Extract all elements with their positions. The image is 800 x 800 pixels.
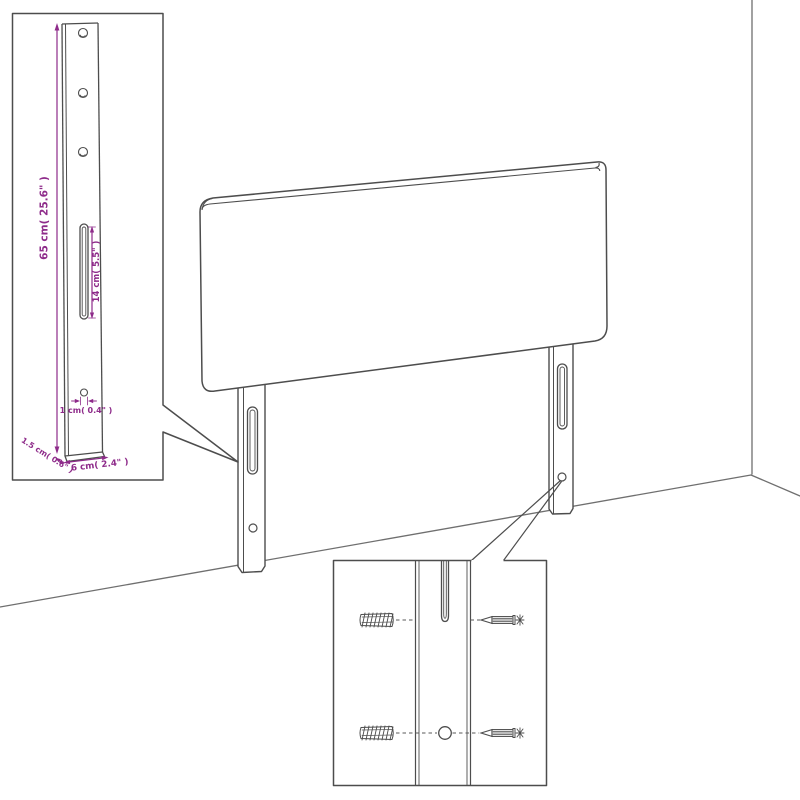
headboard-leg-left xyxy=(238,383,265,573)
detail-inset-wall-mounting xyxy=(333,481,562,787)
callout-line-right xyxy=(504,482,562,561)
panel-outline xyxy=(200,162,607,391)
detail-box-fill xyxy=(333,560,547,786)
headboard-panel xyxy=(200,162,607,391)
floor-line-right xyxy=(751,475,800,496)
dim-leg-height-label: 65 cm( 25.6" ) xyxy=(39,176,51,260)
screw-head-scribble xyxy=(516,728,524,738)
leg-body xyxy=(238,383,265,573)
screw-collar xyxy=(513,616,515,625)
dim-hole-diameter-label: 1 cm( 0.4" ) xyxy=(60,406,113,415)
screw-head-scribble xyxy=(516,615,524,625)
diagram-svg: 65 cm( 25.6" ) 14 cm( 5.5" ) 1 cm( 0.4" … xyxy=(0,0,800,800)
screw-collar xyxy=(513,729,515,738)
dim-slot-length-label: 14 cm( 5.5" ) xyxy=(92,240,102,302)
callout-line-left xyxy=(472,481,561,561)
headboard-dimension-diagram: 65 cm( 25.6" ) 14 cm( 5.5" ) 1 cm( 0.4" … xyxy=(0,0,800,800)
